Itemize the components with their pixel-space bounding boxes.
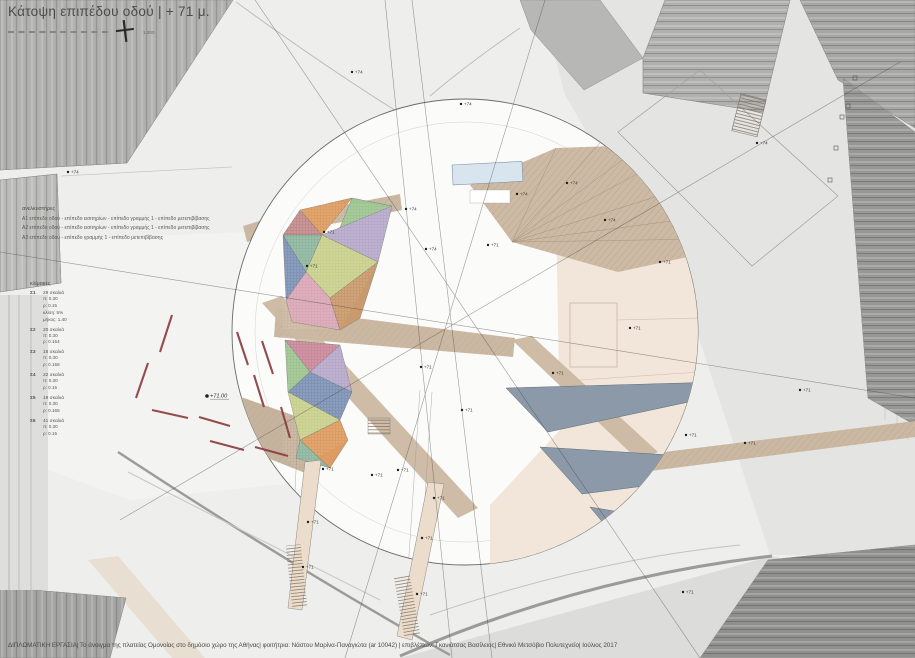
level-marker-dot: [629, 327, 631, 329]
level-marker-dot: [682, 591, 684, 593]
level-marker-dot: [205, 394, 209, 398]
level-marker-label: +71: [491, 243, 499, 248]
level-marker-label: +74: [355, 70, 363, 75]
stair-legend-item: Σ519 σκαλιάπ: 0.30ρ: 0.165: [30, 396, 120, 415]
level-marker-dot: [371, 474, 373, 476]
level-marker-dot: [67, 171, 69, 173]
level-marker-dot: [425, 248, 427, 250]
stairs-legend-items: Σ129 σκαλιάπ: 0.30ρ: 0.15κλίση: 5%μήκος:…: [30, 291, 120, 437]
level-marker-dot: [302, 566, 304, 568]
page-title: Κάτοψη επιπέδου οδού | + 71 μ.: [8, 4, 210, 19]
level-marker-label: +71: [556, 371, 564, 376]
level-marker-label: +74: [429, 247, 437, 252]
elevator-legend-item: Α3 επίπεδο οδού - επίπεδο γραμμής 1 - επ…: [22, 234, 292, 243]
level-marker-dot: [351, 71, 353, 73]
level-marker-dot: [685, 434, 687, 436]
level-marker-label: +74: [570, 181, 578, 186]
level-marker-label: +71: [401, 468, 409, 473]
level-marker-dot: [306, 265, 308, 267]
level-marker-dot: [461, 409, 463, 411]
stair-legend-item: Σ641 σκαλιάπ: 0.30ρ: 0.15: [30, 419, 120, 438]
level-marker-dot: [433, 497, 435, 499]
stair-legend-item: Σ422 σκαλιάπ: 0.30ρ: 0.15: [30, 373, 120, 392]
level-marker-label: +74: [409, 207, 417, 212]
elevators-legend-heading: ανελκυστήρες: [22, 206, 292, 212]
level-marker-label: +71: [375, 473, 383, 478]
stair-id: Σ5: [30, 396, 39, 415]
level-marker-label: +71: [306, 565, 314, 570]
level-marker-label: +74: [520, 192, 528, 197]
level-marker-label: +71: [633, 326, 641, 331]
level-marker-dot: [516, 193, 518, 195]
level-marker-label: +71: [425, 536, 433, 541]
north-cross-icon: [111, 17, 140, 46]
level-marker-label: +71: [748, 441, 756, 446]
level-marker-label: +71: [311, 520, 319, 525]
level-marker-dot: [323, 231, 325, 233]
level-marker-label: +74: [464, 102, 472, 107]
level-marker-label: +74: [71, 170, 79, 175]
level-marker-dot: [487, 244, 489, 246]
stairs-legend-heading: κλίμακες: [30, 281, 120, 287]
elevator-legend-item: Α2 επίπεδο οδού - επίπεδο εισιτηρίων - ε…: [22, 224, 292, 233]
stair-details: 16 σκαλιάπ: 0.30ρ: 0.158: [43, 350, 64, 369]
stair-legend-item: Σ129 σκαλιάπ: 0.30ρ: 0.15κλίση: 5%μήκος:…: [30, 291, 120, 324]
stair-details: 29 σκαλιάπ: 0.30ρ: 0.15κλίση: 5%μήκος: 1…: [43, 291, 67, 324]
stair-id: Σ6: [30, 419, 39, 438]
sheet-caption: ΔΙΠΛΩΜΑΤΙΚΗ ΕΡΓΑΣΙΑ| Το άνοιγμα της πλατ…: [8, 642, 617, 649]
level-marker-label: +71: [663, 260, 671, 265]
stair-details: 22 σκαλιάπ: 0.30ρ: 0.15: [43, 373, 64, 392]
title-block: Κάτοψη επιπέδου οδού | + 71 μ.: [8, 4, 210, 19]
level-marker-dot: [552, 372, 554, 374]
level-marker-dot: [416, 593, 418, 595]
level-marker-dot: [307, 521, 309, 523]
level-marker-dot: [405, 208, 407, 210]
scale-note: 1:200: [143, 30, 155, 35]
stair-id: Σ4: [30, 373, 39, 392]
stairs-legend: κλίμακες Σ129 σκαλιάπ: 0.30ρ: 0.15κλίση:…: [30, 281, 120, 441]
level-marker-label: +71: [689, 433, 697, 438]
level-marker-dot: [604, 219, 606, 221]
level-marker-dot: [397, 469, 399, 471]
stair-id: Σ2: [30, 328, 39, 347]
stair-id: Σ3: [30, 350, 39, 369]
level-marker-dot: [421, 537, 423, 539]
level-marker-dot: [322, 468, 324, 470]
stair-details: 41 σκαλιάπ: 0.30ρ: 0.15: [43, 419, 64, 438]
level-marker-dot: [420, 366, 422, 368]
stair-id: Σ1: [30, 291, 39, 324]
level-marker-dot: [744, 442, 746, 444]
scale-bar: [8, 31, 108, 33]
stair-details: 19 σκαλιάπ: 0.30ρ: 0.165: [43, 396, 64, 415]
level-marker-dot: [460, 103, 462, 105]
elevators-legend-items: Α1 επίπεδο οδού - επίπεδο εισιτηρίων - ε…: [22, 215, 292, 243]
level-marker-dot: [799, 389, 801, 391]
level-marker-label: +74: [608, 218, 616, 223]
stair-details: 20 σκαλιάπ: 0.30ρ: 0.154: [43, 328, 64, 347]
stair-legend-item: Σ316 σκαλιάπ: 0.30ρ: 0.158: [30, 350, 120, 369]
level-marker-dot: [659, 261, 661, 263]
level-marker-label: +71.00: [210, 394, 228, 400]
site-plan-drawing: +71.00+71+71+74+74+71+74+74+74+71+71+71+…: [0, 0, 915, 658]
elevators-legend: ανελκυστήρες Α1 επίπεδο οδού - επίπεδο ε…: [22, 206, 292, 243]
elevator-legend-item: Α1 επίπεδο οδού - επίπεδο εισιτηρίων - ε…: [22, 215, 292, 224]
stair-legend-item: Σ220 σκαλιάπ: 0.30ρ: 0.154: [30, 328, 120, 347]
level-marker-label: +71: [437, 496, 445, 501]
drawing-sheet: +71.00+71+71+74+74+71+74+74+74+71+71+71+…: [0, 0, 915, 658]
level-marker-label: +71: [686, 590, 694, 595]
level-marker-label: +71: [424, 365, 432, 370]
level-marker-label: +71: [327, 230, 335, 235]
level-marker-dot: [566, 182, 568, 184]
level-marker-label: +71: [803, 388, 811, 393]
level-marker-dot: [756, 142, 758, 144]
level-marker-label: +71: [326, 467, 334, 472]
level-marker-label: +71: [465, 408, 473, 413]
level-marker-label: +71: [310, 264, 318, 269]
level-marker-label: +71: [420, 592, 428, 597]
level-marker-label: +74: [760, 141, 768, 146]
